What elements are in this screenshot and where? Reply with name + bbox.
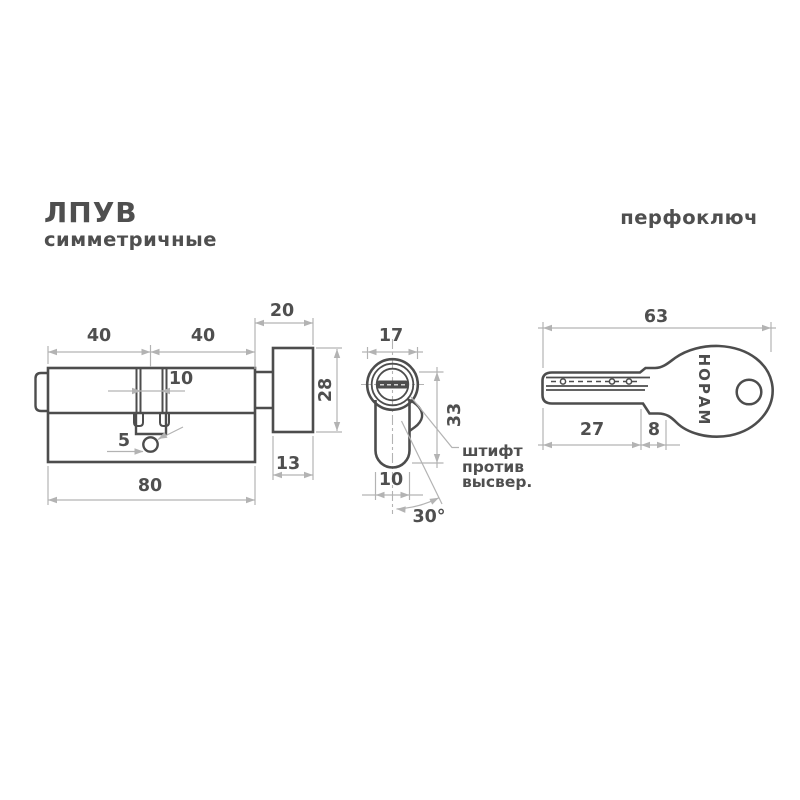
dim-80-body: 80 xyxy=(138,476,162,496)
anti-drill-note: штифт против высвер. xyxy=(462,444,532,491)
key-ring-hole xyxy=(737,380,762,405)
series-title: ЛПУВ xyxy=(44,196,138,229)
dim-8-shoulder: 8 xyxy=(648,420,660,440)
dim-63-key-length: 63 xyxy=(644,307,668,327)
side-view-dimension-lines xyxy=(48,318,342,505)
fixing-screw xyxy=(143,437,157,451)
dim-17-diameter: 17 xyxy=(379,326,403,346)
dim-10-body-width: 10 xyxy=(379,470,403,490)
cylinder-body-outline xyxy=(48,368,255,462)
dim-40-right: 40 xyxy=(191,326,215,346)
dim-27-blade: 27 xyxy=(580,420,604,440)
dim-33-height: 33 xyxy=(445,403,465,427)
dim-10-cam: 10 xyxy=(169,369,193,389)
blade-perforation-hole xyxy=(560,379,565,384)
key-type-label: перфоключ xyxy=(620,206,758,229)
blade-perforation-hole xyxy=(626,379,631,384)
key-brand-text: НОРАМ xyxy=(695,354,713,427)
dim-5-screw: 5 xyxy=(118,431,130,451)
series-subtitle: симметричные xyxy=(44,228,217,251)
thumbturn-knob xyxy=(273,348,313,432)
thumbturn-neck xyxy=(255,372,273,408)
blade-perforation-hole xyxy=(609,379,614,384)
cam-cutout xyxy=(136,413,166,434)
technical-drawing-page: ЛПУВ симметричные перфоключ 40 40 20 10 … xyxy=(0,0,800,800)
cam-slot-feet xyxy=(134,414,169,426)
dim-13-knob: 13 xyxy=(276,454,300,474)
dim-20-knob: 20 xyxy=(270,301,294,321)
note-line-3: высвер. xyxy=(462,475,532,491)
dim-40-left: 40 xyxy=(87,326,111,346)
dim-28-knob-height: 28 xyxy=(316,378,336,402)
side-view-linework xyxy=(36,348,314,462)
dim-angle-30: 30° xyxy=(412,507,445,527)
cylinder-front-cap xyxy=(36,373,49,411)
drawing-linework xyxy=(0,0,800,800)
